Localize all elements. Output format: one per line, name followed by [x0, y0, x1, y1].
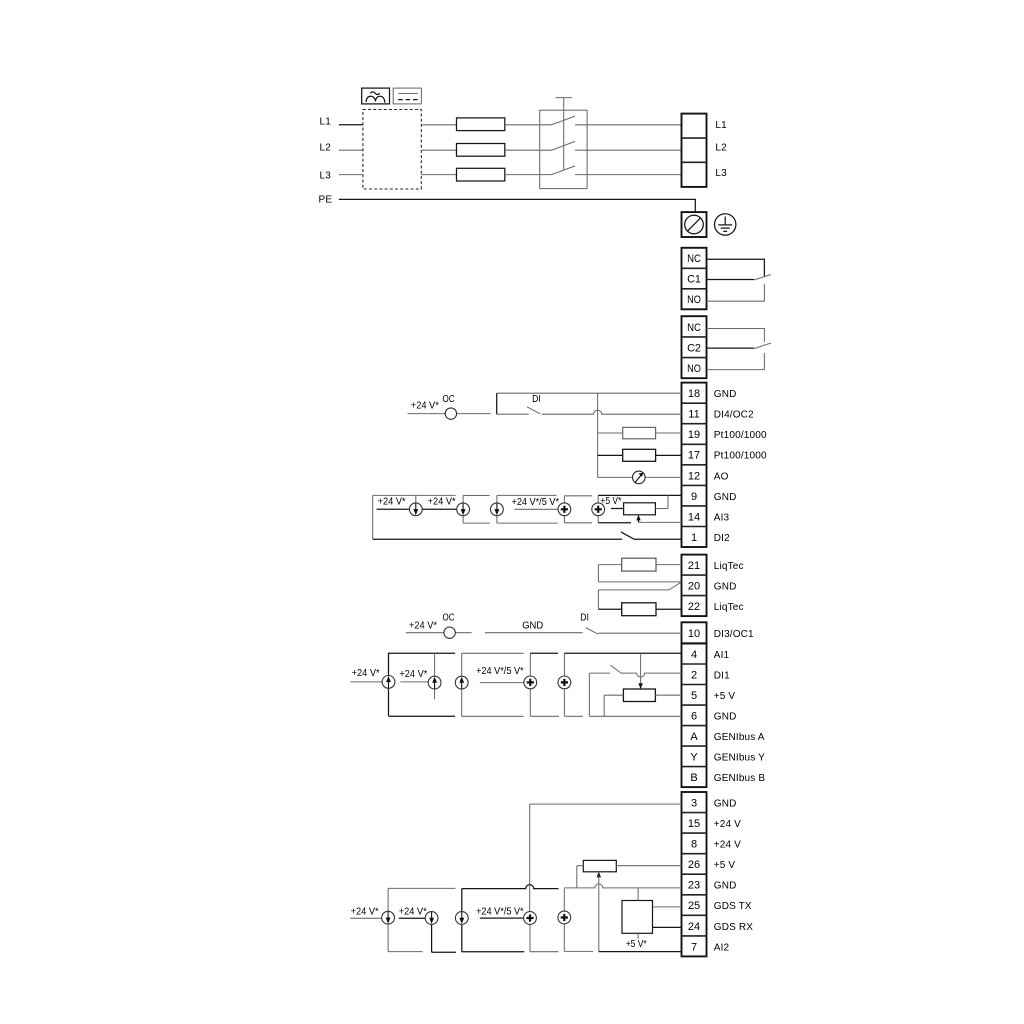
svg-text:+5 V: +5 V	[714, 691, 736, 702]
svg-text:22: 22	[688, 601, 700, 613]
svg-text:DI1: DI1	[714, 670, 730, 681]
svg-text:12: 12	[688, 470, 700, 482]
svg-text:LiqTec: LiqTec	[714, 602, 744, 613]
svg-text:Pt100/1000: Pt100/1000	[714, 430, 767, 441]
svg-text:9: 9	[691, 491, 697, 503]
svg-text:L1: L1	[320, 117, 332, 128]
svg-text:15: 15	[688, 818, 700, 830]
svg-text:14: 14	[688, 511, 700, 523]
svg-text:GDS RX: GDS RX	[714, 922, 753, 933]
svg-text:AI3: AI3	[714, 512, 730, 523]
svg-text:+5 V: +5 V	[714, 860, 736, 871]
svg-text:8: 8	[691, 839, 697, 851]
svg-text:GND: GND	[714, 389, 737, 400]
svg-text:GENIbus A: GENIbus A	[714, 732, 765, 743]
svg-text:7: 7	[691, 941, 697, 953]
svg-text:+5 V*: +5 V*	[600, 496, 621, 507]
svg-text:B: B	[690, 772, 697, 784]
svg-text:Y: Y	[690, 752, 698, 764]
svg-text:GND: GND	[714, 712, 737, 723]
svg-text:A: A	[690, 731, 698, 743]
svg-text:L3: L3	[320, 171, 332, 182]
svg-text:5: 5	[691, 690, 697, 702]
svg-text:+24 V: +24 V	[714, 840, 741, 851]
svg-text:+24 V*: +24 V*	[351, 906, 379, 917]
svg-text:NC: NC	[687, 253, 701, 265]
svg-text:GND: GND	[714, 881, 737, 892]
svg-text:GENIbus Y: GENIbus Y	[714, 753, 765, 764]
svg-text:L3: L3	[715, 168, 727, 179]
svg-text:C2: C2	[687, 343, 701, 355]
svg-text:OC: OC	[443, 394, 455, 405]
svg-text:GND: GND	[714, 799, 737, 810]
svg-text:GENIbus B: GENIbus B	[714, 773, 766, 784]
svg-text:4: 4	[691, 649, 697, 661]
svg-text:Pt100/1000: Pt100/1000	[714, 451, 767, 462]
svg-text:+24 V*: +24 V*	[409, 621, 437, 632]
svg-text:NO: NO	[687, 294, 701, 306]
svg-text:18: 18	[688, 388, 700, 400]
svg-text:+24 V*: +24 V*	[399, 669, 427, 680]
svg-text:26: 26	[688, 859, 700, 871]
svg-text:NO: NO	[687, 363, 701, 375]
svg-text:25: 25	[688, 900, 700, 912]
svg-text:1: 1	[691, 532, 697, 544]
svg-text:GND: GND	[714, 582, 737, 593]
svg-text:20: 20	[688, 581, 700, 593]
svg-text:DI3/OC1: DI3/OC1	[714, 629, 754, 640]
svg-text:AO: AO	[714, 471, 729, 482]
svg-text:NC: NC	[687, 322, 701, 334]
svg-text:DI2: DI2	[714, 533, 730, 544]
svg-text:+24 V*: +24 V*	[428, 496, 456, 507]
svg-text:+24 V*: +24 V*	[411, 400, 439, 411]
svg-text:L1: L1	[715, 120, 727, 131]
svg-text:+24 V*/5 V*: +24 V*/5 V*	[512, 497, 560, 508]
svg-text:OC: OC	[443, 612, 455, 623]
svg-text:LiqTec: LiqTec	[714, 561, 744, 572]
svg-text:DI: DI	[580, 612, 589, 623]
svg-text:24: 24	[688, 921, 700, 933]
svg-text:GDS TX: GDS TX	[714, 901, 752, 912]
svg-text:GND: GND	[522, 621, 543, 632]
svg-text:2: 2	[691, 669, 697, 681]
svg-text:+24 V*: +24 V*	[378, 496, 406, 507]
svg-text:+24 V*: +24 V*	[352, 668, 380, 679]
svg-text:GND: GND	[714, 492, 737, 503]
svg-text:+24 V*/5 V*: +24 V*/5 V*	[476, 666, 523, 677]
svg-text:+24 V*: +24 V*	[399, 906, 427, 917]
svg-text:L2: L2	[320, 143, 332, 154]
svg-text:6: 6	[691, 711, 697, 723]
svg-text:10: 10	[688, 628, 700, 640]
svg-text:AI1: AI1	[714, 650, 730, 661]
svg-text:21: 21	[688, 560, 700, 572]
svg-text:DI: DI	[532, 394, 541, 405]
svg-text:+24 V: +24 V	[714, 819, 741, 830]
svg-text:AI2: AI2	[714, 942, 730, 953]
svg-text:+5 V*: +5 V*	[626, 939, 647, 950]
svg-text:11: 11	[688, 409, 699, 421]
svg-text:23: 23	[688, 880, 700, 892]
svg-text:+24 V*/5 V*: +24 V*/5 V*	[476, 906, 523, 917]
svg-text:C1: C1	[687, 274, 701, 286]
svg-text:PE: PE	[319, 195, 333, 206]
svg-text:L2: L2	[715, 143, 727, 154]
svg-text:19: 19	[688, 429, 700, 441]
svg-text:3: 3	[691, 798, 697, 810]
svg-text:17: 17	[688, 450, 700, 462]
svg-text:DI4/OC2: DI4/OC2	[714, 410, 754, 421]
